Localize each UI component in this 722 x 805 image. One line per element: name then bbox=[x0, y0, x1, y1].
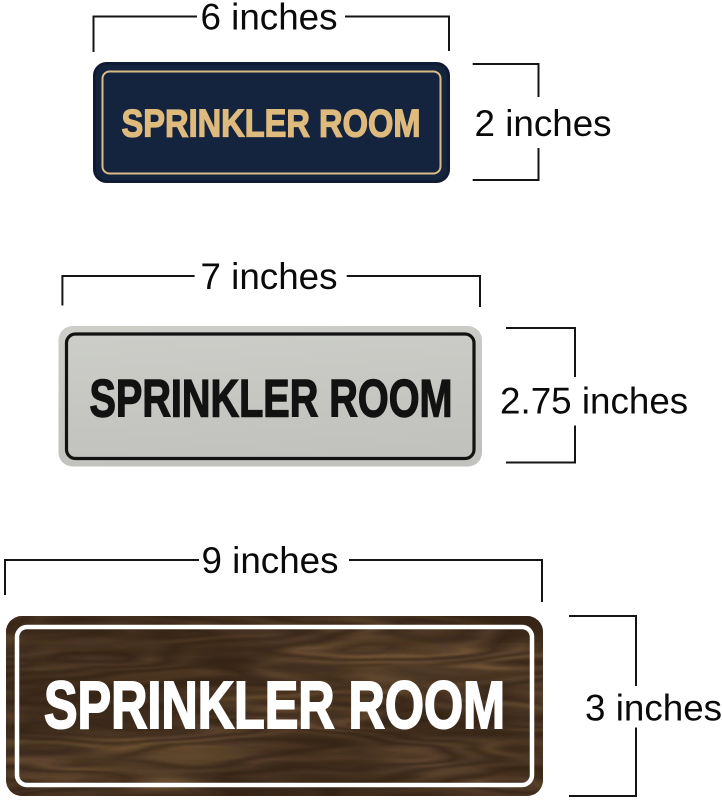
svg-text:3 inches: 3 inches bbox=[585, 688, 722, 729]
svg-text:SPRINKLER ROOM: SPRINKLER ROOM bbox=[44, 668, 505, 743]
svg-text:7 inches: 7 inches bbox=[200, 256, 337, 297]
svg-text:6 inches: 6 inches bbox=[200, 0, 337, 38]
svg-text:9 inches: 9 inches bbox=[201, 540, 338, 581]
svg-text:2 inches: 2 inches bbox=[475, 103, 612, 144]
svg-text:SPRINKLER ROOM: SPRINKLER ROOM bbox=[90, 370, 453, 429]
svg-text:2.75 inches: 2.75 inches bbox=[500, 381, 688, 422]
svg-text:SPRINKLER ROOM: SPRINKLER ROOM bbox=[122, 102, 421, 145]
